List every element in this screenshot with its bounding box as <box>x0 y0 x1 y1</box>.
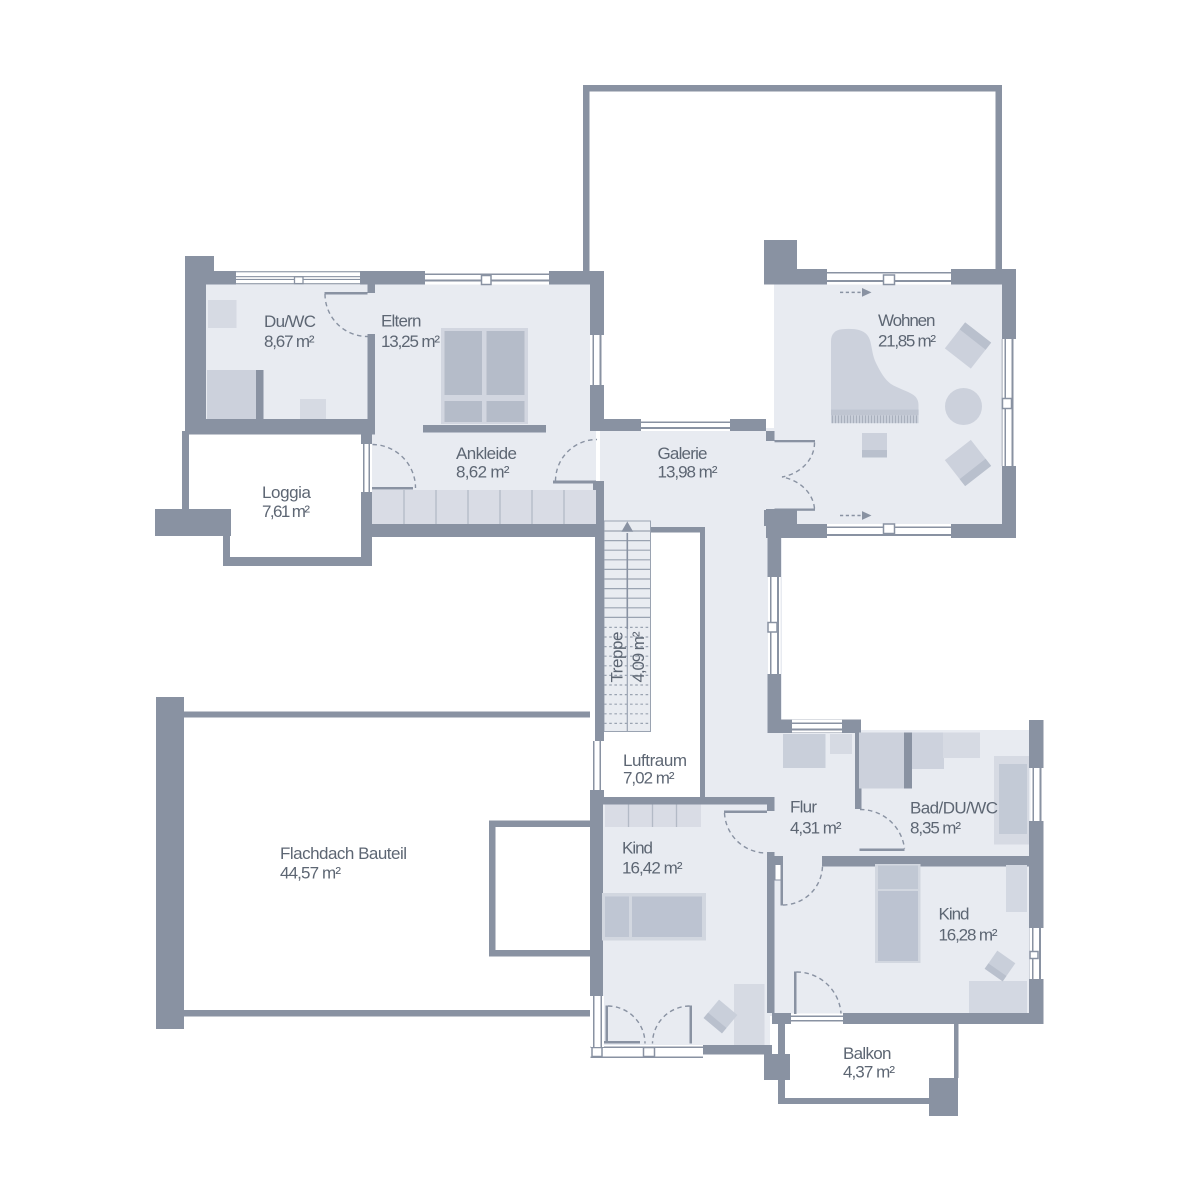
svg-text:Ankleide: Ankleide <box>456 444 517 463</box>
svg-text:Galerie: Galerie <box>658 444 708 463</box>
svg-text:Du/WC: Du/WC <box>264 312 316 331</box>
svg-text:7,61 m²: 7,61 m² <box>262 502 310 521</box>
svg-text:21,85 m²: 21,85 m² <box>878 332 936 351</box>
svg-text:Bad/DU/WC: Bad/DU/WC <box>910 799 998 818</box>
svg-text:8,67 m²: 8,67 m² <box>264 332 315 351</box>
svg-text:13,25 m²: 13,25 m² <box>381 332 440 351</box>
svg-text:44,57 m²: 44,57 m² <box>280 864 341 883</box>
svg-text:8,62 m²: 8,62 m² <box>456 463 510 482</box>
svg-text:Flachdach Bauteil: Flachdach Bauteil <box>280 844 407 863</box>
svg-text:13,98 m²: 13,98 m² <box>658 463 718 482</box>
svg-text:Luftraum: Luftraum <box>623 751 687 770</box>
svg-text:Wohnen: Wohnen <box>878 311 936 330</box>
svg-text:16,42 m²: 16,42 m² <box>622 859 683 878</box>
svg-text:8,35 m²: 8,35 m² <box>910 819 961 838</box>
svg-text:Kind: Kind <box>622 839 653 858</box>
svg-text:Treppe: Treppe <box>608 632 627 683</box>
svg-text:4,37 m²: 4,37 m² <box>843 1063 895 1082</box>
svg-text:Balkon: Balkon <box>843 1044 892 1063</box>
svg-text:Loggia: Loggia <box>262 483 312 502</box>
svg-text:Flur: Flur <box>790 798 817 817</box>
svg-text:7,02 m²: 7,02 m² <box>623 769 675 788</box>
svg-text:Kind: Kind <box>939 905 970 924</box>
svg-text:Eltern: Eltern <box>381 312 422 331</box>
svg-text:4,09 m²: 4,09 m² <box>629 631 648 682</box>
svg-text:4,31 m²: 4,31 m² <box>790 819 842 838</box>
svg-text:16,28 m²: 16,28 m² <box>939 926 998 945</box>
